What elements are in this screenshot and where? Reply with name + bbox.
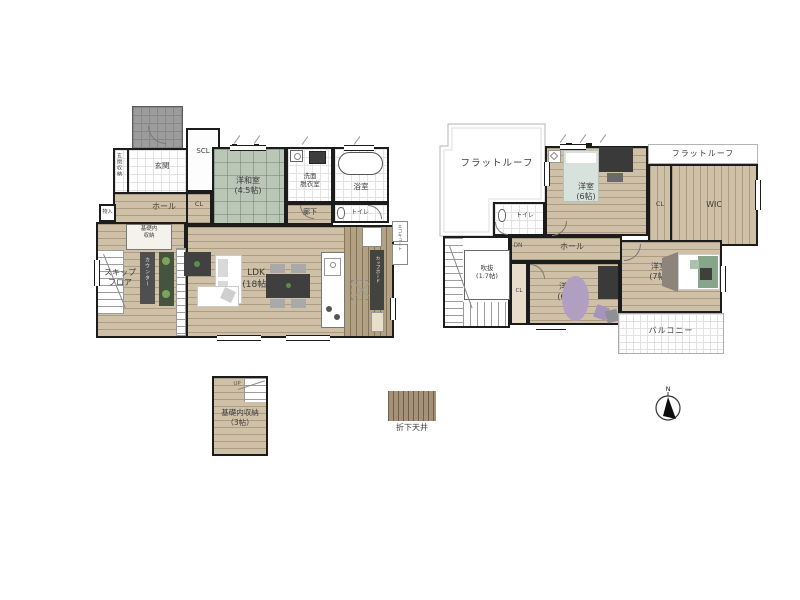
pantry-box: [371, 312, 384, 332]
faucet-icon: [330, 262, 336, 268]
eave-tick: [234, 135, 241, 144]
bathtub-icon: [338, 152, 383, 175]
eave-tick: [302, 136, 309, 145]
hall-2f: [510, 236, 622, 262]
desk-b: [598, 266, 618, 299]
bed-headboard: [662, 252, 678, 292]
eave-tick: [354, 136, 361, 145]
mono-ire: [99, 204, 116, 222]
cupboard: [370, 250, 384, 310]
dropped-ceiling-label: 折下天井: [382, 423, 442, 433]
wall-post: [586, 143, 592, 148]
window: [94, 260, 100, 286]
window: [720, 266, 726, 292]
eave-tick: [600, 134, 607, 143]
kiso-storage-1f: [126, 224, 172, 250]
stove-burner-icon: [334, 314, 340, 320]
plant-icon: [162, 257, 170, 265]
washitsu-room: [212, 147, 286, 225]
dining-chair: [270, 264, 285, 273]
window: [755, 180, 761, 210]
eave-tick: [580, 134, 587, 143]
bean-chair: [562, 276, 589, 321]
stove-burner-icon: [326, 306, 332, 312]
bed-pillow: [700, 268, 712, 280]
toilet-icon: [498, 209, 506, 222]
window: [390, 298, 396, 320]
window: [560, 144, 586, 150]
closet-2f: [648, 164, 672, 246]
washer-icon: [309, 151, 326, 164]
eave-tick: [254, 135, 261, 144]
stairs-2f-treads: [445, 238, 463, 326]
dropped-ceiling-swatch: [388, 391, 436, 421]
stairs-1f: [98, 250, 124, 314]
sink-basin-icon: [294, 153, 301, 160]
wic: [670, 164, 758, 246]
closet-b: [510, 262, 528, 325]
window: [536, 324, 566, 330]
dining-chair: [291, 264, 306, 273]
plant-icon: [162, 290, 170, 298]
dining-chair: [270, 299, 285, 308]
pillow-icon: [565, 152, 597, 164]
ecocute-unit: [392, 244, 408, 265]
toilet-icon: [337, 207, 345, 219]
void-area: [464, 250, 510, 300]
chair-icon: [607, 173, 623, 182]
floor-plan-canvas: 玄関収納 玄関 SCL 洋和室 (4.5帖) 洗面 脱衣室 浴室 廊下 トイレ: [0, 0, 800, 600]
window: [344, 145, 374, 151]
cl-1f: [186, 192, 212, 225]
desk-a: [599, 147, 633, 172]
window: [544, 162, 550, 186]
sofa-icon: [218, 259, 228, 277]
tall-cabinet: [362, 227, 382, 247]
window: [286, 335, 330, 341]
eave-tick: [560, 134, 567, 143]
window: [230, 145, 266, 151]
flat-roof-right: [648, 144, 758, 164]
bed-pillow: [690, 260, 699, 269]
balcony: [618, 313, 724, 354]
window: [217, 335, 261, 341]
ecocute-unit: [392, 221, 408, 242]
plant-icon: [286, 283, 291, 288]
counter: [140, 252, 155, 304]
north-arrow-icon: [653, 392, 685, 424]
dining-chair: [291, 299, 306, 308]
plant-icon: [194, 261, 200, 267]
